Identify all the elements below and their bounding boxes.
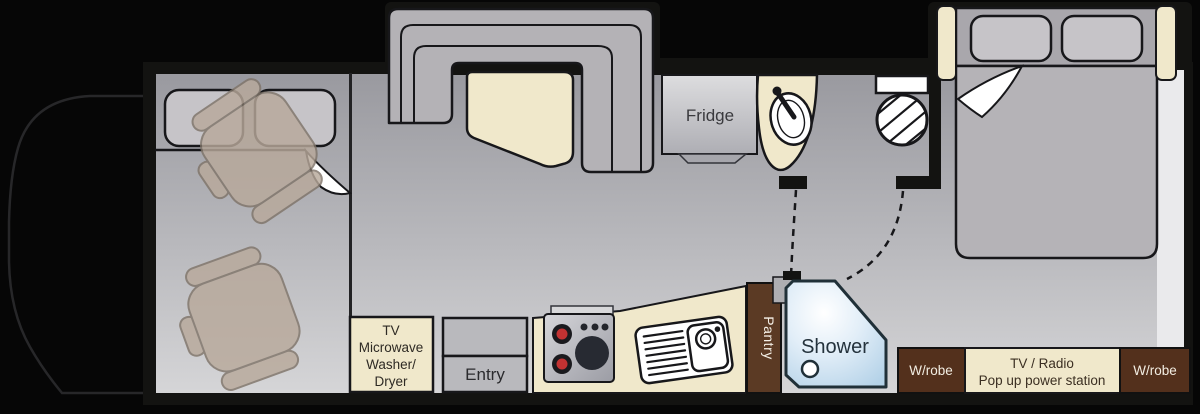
shower-wall-stub (783, 271, 801, 280)
wall-stub-bath-left (779, 176, 807, 189)
wall-top-mid (648, 58, 941, 75)
pantry-label: Pantry (761, 316, 777, 359)
burner-flame-1 (557, 329, 568, 340)
cooktop-knob-3 (602, 324, 609, 331)
entry-label: Entry (465, 365, 505, 384)
cab-nose-outline (9, 96, 150, 393)
front-cabinet-label-4: Dryer (375, 374, 409, 389)
floorplan-stage: Fridge Entry Pantry TV Microwave Washer/… (0, 0, 1200, 414)
power-station-label-2: Pop up power station (979, 373, 1106, 388)
shower-label: Shower (801, 336, 869, 358)
bedside-counter-strip (1157, 70, 1184, 348)
fridge-label: Fridge (686, 106, 734, 125)
burner-flame-2 (557, 359, 568, 370)
burner-large (575, 336, 609, 370)
floorplan-svg: Fridge Entry Pantry TV Microwave Washer/… (0, 0, 1200, 414)
toilet-bowl (877, 95, 927, 145)
toilet-cistern (876, 76, 928, 93)
vanity-tap-base (773, 87, 782, 96)
wall-bottom (143, 393, 1193, 405)
front-cabinet-label-2: Microwave (359, 340, 424, 355)
pillow-left (971, 16, 1051, 61)
entry-step (443, 318, 527, 356)
wardrobe-right-label: W/robe (1133, 363, 1177, 378)
fridge-handle (679, 154, 746, 163)
cooktop-knob-2 (592, 324, 599, 331)
shower-drain (802, 361, 818, 377)
bed-post-right (1156, 6, 1176, 80)
bed-post-left (937, 6, 956, 80)
wall-stub-bath-right (896, 176, 941, 189)
pillow-right (1062, 16, 1142, 61)
front-cabinet-label-3: Washer/ (366, 357, 416, 372)
sink-plughole (695, 328, 716, 349)
power-station-label-1: TV / Radio (1010, 356, 1074, 371)
wall-left (143, 62, 156, 405)
sink-unit (635, 316, 734, 384)
wardrobe-left-label: W/robe (909, 363, 953, 378)
wall-top-front (143, 62, 395, 74)
cooktop-knob-1 (581, 324, 588, 331)
front-cabinet-label-1: TV (382, 323, 399, 338)
